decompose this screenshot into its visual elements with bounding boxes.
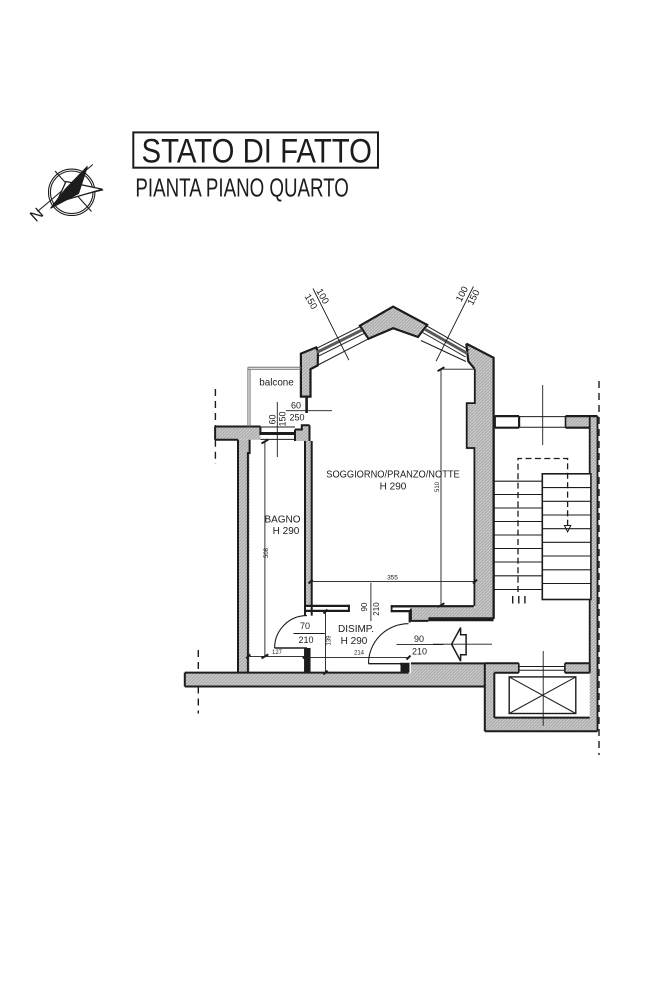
svg-text:DISIMP.: DISIMP. — [338, 624, 374, 635]
svg-text:60: 60 — [291, 401, 301, 411]
svg-text:150: 150 — [278, 411, 288, 426]
svg-text:70: 70 — [300, 621, 310, 631]
svg-text:H 290: H 290 — [273, 526, 300, 537]
svg-text:139: 139 — [327, 635, 333, 646]
svg-text:STATO DI FATTO: STATO DI FATTO — [142, 133, 373, 171]
svg-text:210: 210 — [372, 602, 381, 616]
svg-text:510: 510 — [435, 481, 441, 492]
svg-text:250: 250 — [289, 413, 304, 423]
svg-text:210: 210 — [412, 646, 427, 656]
svg-text:90: 90 — [414, 634, 424, 644]
svg-text:balcone: balcone — [259, 377, 294, 389]
svg-text:355: 355 — [387, 575, 398, 582]
svg-text:BAGNO: BAGNO — [264, 515, 300, 526]
svg-text:90: 90 — [360, 602, 369, 611]
svg-text:SOGGIORNO/PRANZO/NOTTE: SOGGIORNO/PRANZO/NOTTE — [326, 470, 460, 481]
svg-text:H 290: H 290 — [341, 636, 368, 647]
svg-text:214: 214 — [354, 651, 365, 657]
svg-text:127: 127 — [272, 650, 283, 656]
svg-text:PIANTA PIANO QUARTO: PIANTA PIANO QUARTO — [135, 173, 349, 203]
svg-text:508: 508 — [264, 547, 270, 558]
svg-text:60: 60 — [268, 414, 278, 424]
svg-text:210: 210 — [298, 635, 313, 645]
svg-text:H 290: H 290 — [380, 482, 407, 493]
